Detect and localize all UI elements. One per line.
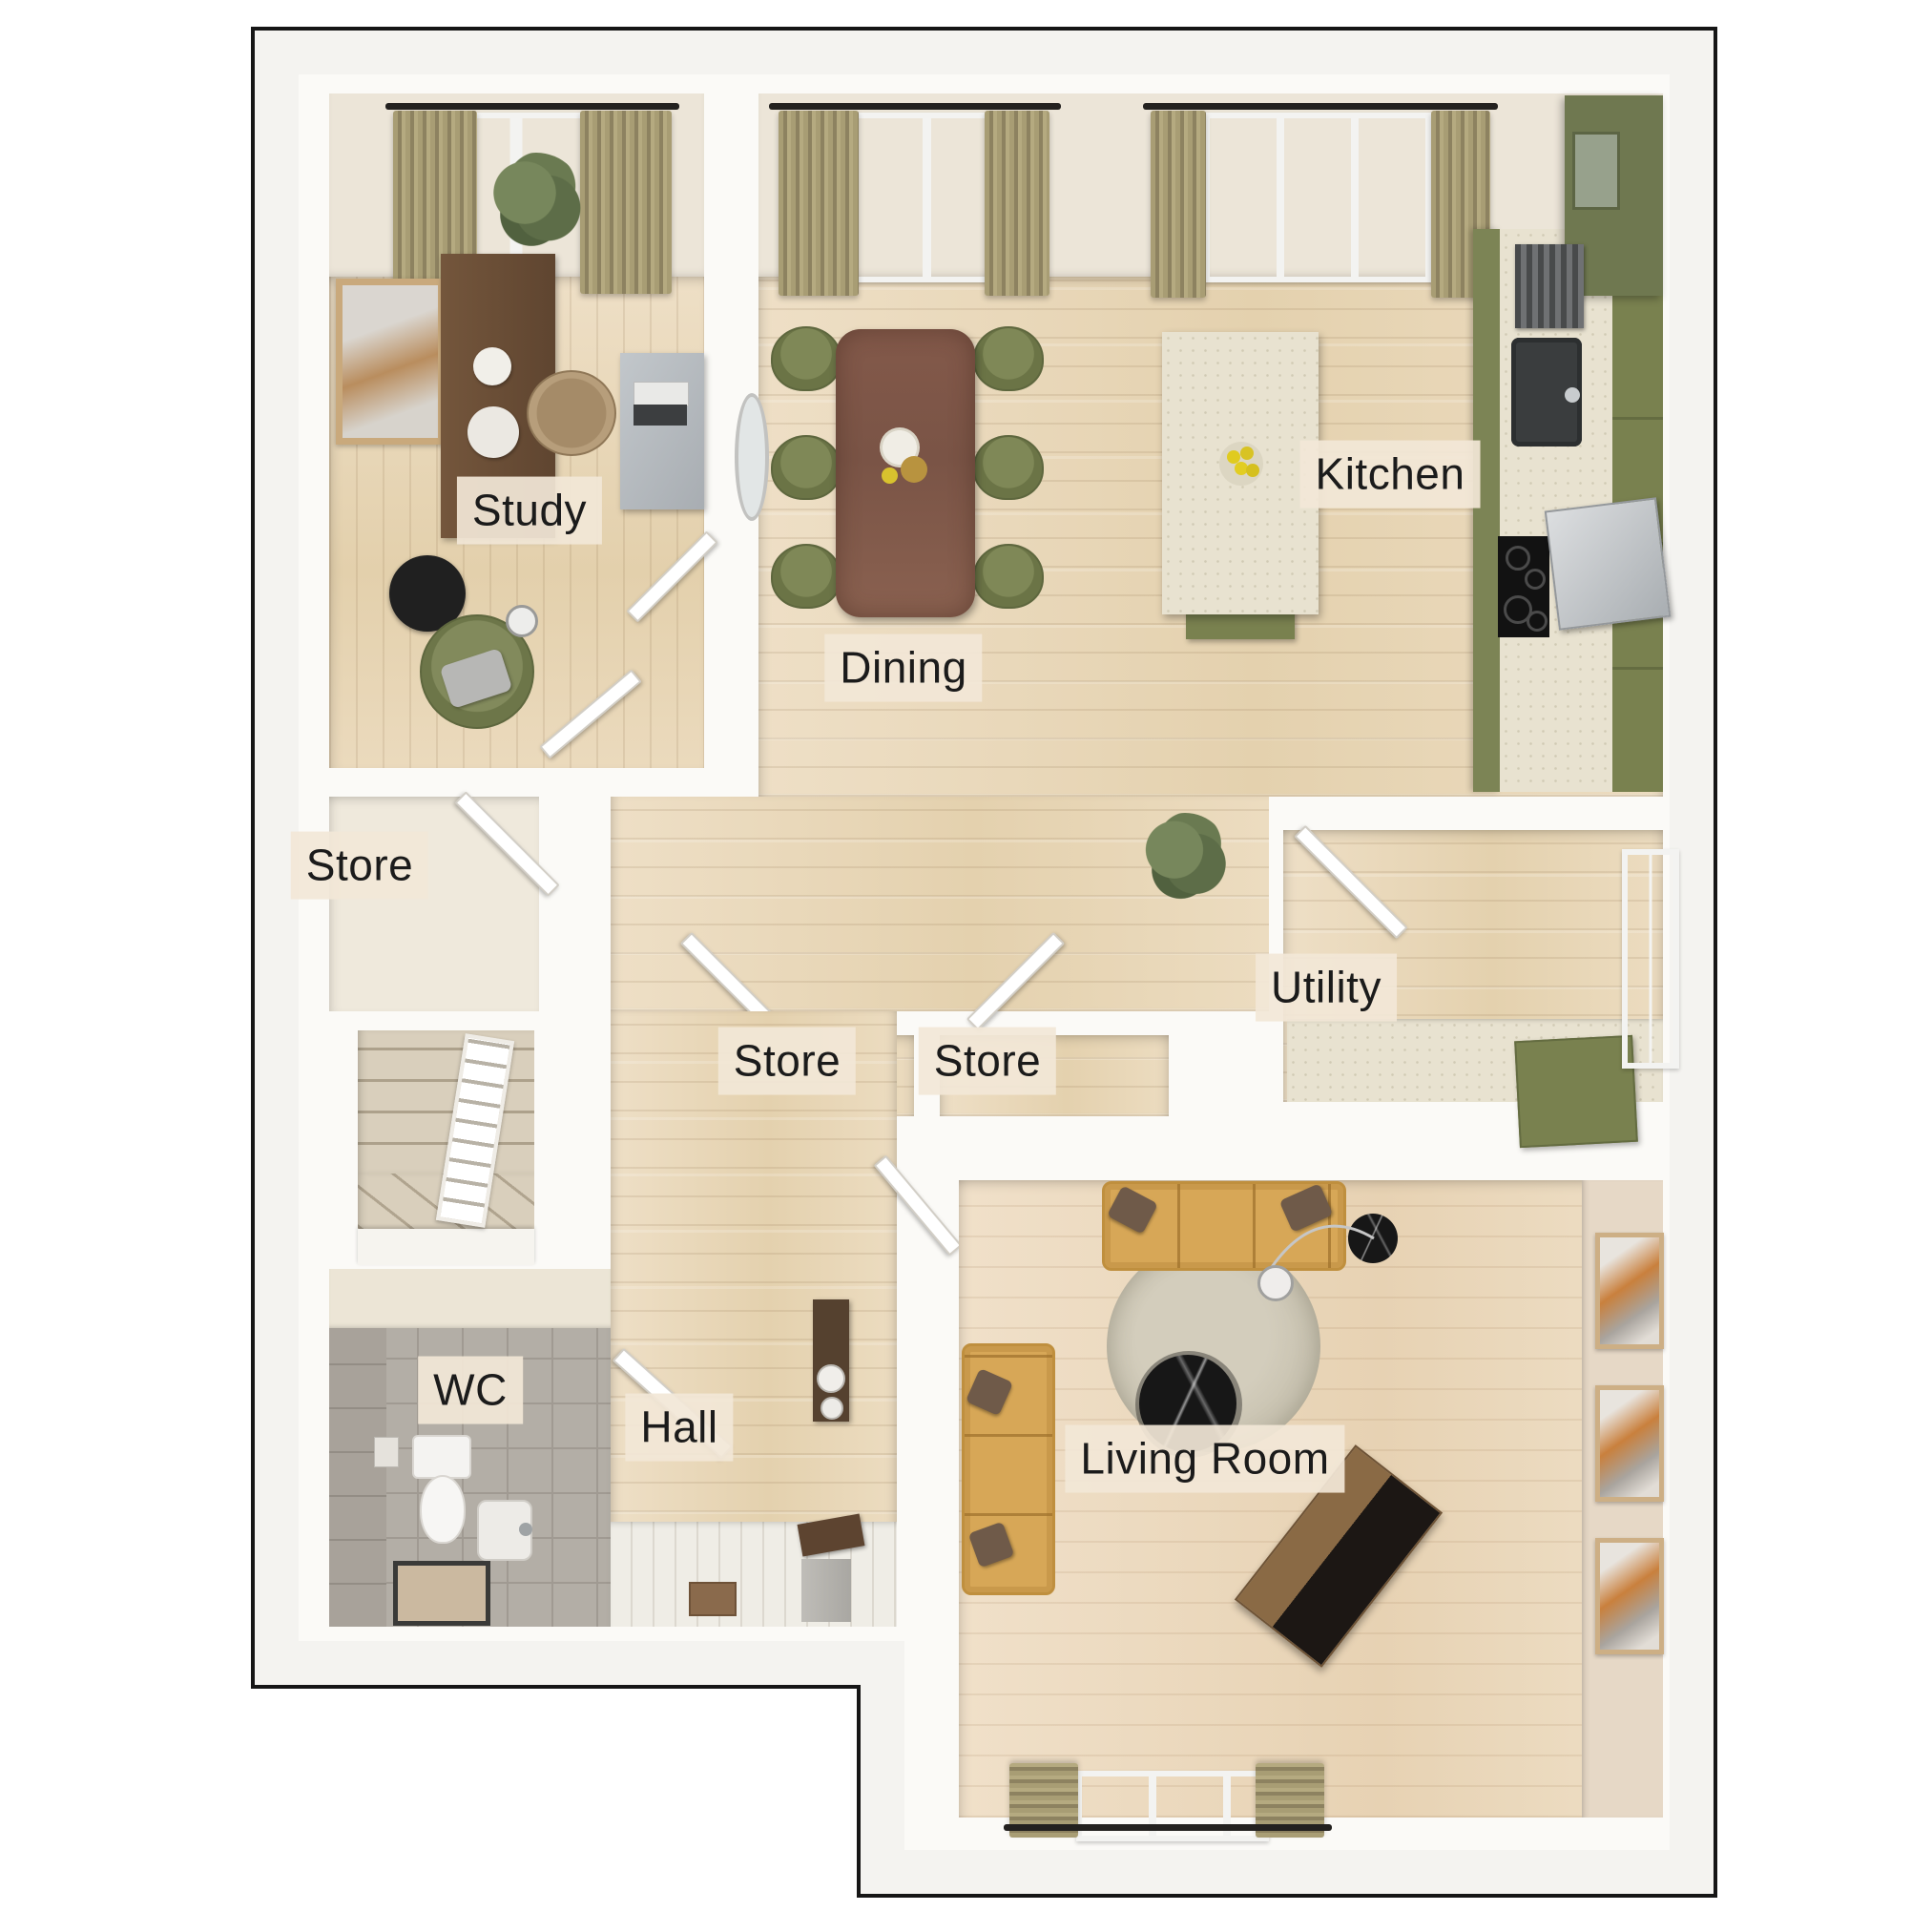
utility-washer <box>1514 1035 1638 1148</box>
dining-curtain-right <box>985 111 1049 296</box>
dining-chair <box>973 544 1044 609</box>
study-floor-lamp <box>506 605 538 637</box>
toilet-roll-holder <box>374 1437 399 1467</box>
hob-ring <box>1527 611 1548 632</box>
study-plant <box>488 153 584 248</box>
dining-chair <box>973 435 1044 500</box>
dining-centerpiece-lemon <box>882 467 898 484</box>
kitchen-extractor <box>1515 244 1584 328</box>
living-room-curtain-rod <box>1004 1824 1332 1831</box>
study-curtain-right <box>580 111 672 294</box>
room-label-kitchen: Kitchen <box>1300 441 1481 509</box>
study-laptop-keyboard <box>634 405 687 426</box>
lemon <box>1240 447 1254 460</box>
hall-doormat <box>689 1582 737 1616</box>
toilet-cistern <box>412 1435 471 1479</box>
wc-wall-face <box>329 1269 611 1328</box>
arc-lamp-head <box>1257 1265 1294 1301</box>
kitchen-window <box>1204 113 1462 282</box>
room-label-utility: Utility <box>1256 954 1397 1022</box>
room-label-store-mid-right: Store <box>919 1028 1056 1095</box>
hob-ring <box>1506 546 1530 571</box>
room-label-store-mid-left: Store <box>718 1028 856 1095</box>
room-label-wc: WC <box>418 1357 523 1424</box>
study-desk <box>620 353 704 509</box>
store-left-floor <box>329 797 539 1011</box>
room-label-study: Study <box>457 477 602 545</box>
room-label-living-room: Living Room <box>1065 1425 1344 1493</box>
dining-curtain-rod <box>769 103 1061 110</box>
dining-chair <box>771 326 841 391</box>
study-vase-small <box>473 347 511 385</box>
room-label-dining: Dining <box>824 634 982 702</box>
hall-lamp-sphere <box>817 1364 845 1393</box>
dining-curtain-left <box>779 111 859 296</box>
dining-wall-mirror <box>735 393 769 521</box>
dining-chair <box>973 326 1044 391</box>
kitchen-appliance-silver <box>1545 497 1671 630</box>
kitchen-cabinet-glass <box>1572 132 1620 210</box>
study-desk-chair <box>527 370 616 456</box>
room-label-store-left: Store <box>291 832 428 900</box>
kitchen-curtain-rod <box>1143 103 1498 110</box>
dining-window <box>853 113 1001 282</box>
hall-lamp-sphere-small <box>821 1397 843 1420</box>
wc-tiled-wall <box>329 1328 386 1627</box>
study-vase-large <box>467 406 519 458</box>
room-label-hall: Hall <box>625 1394 733 1462</box>
kitchen-base-cabinets <box>1473 229 1500 792</box>
wc-basin-tap <box>519 1523 532 1536</box>
wall-art-frame <box>1595 1385 1664 1502</box>
study-laptop-screen <box>634 382 689 406</box>
hall-bench <box>801 1559 851 1622</box>
floor-plan: Study Dining Kitchen Store Store Store U… <box>0 0 1932 1932</box>
staircase-landing <box>358 1229 534 1265</box>
wc-mat <box>393 1561 490 1626</box>
study-picture-frame <box>336 279 445 445</box>
dining-chair <box>771 435 841 500</box>
wall-art-frame <box>1595 1233 1664 1349</box>
study-curtain-rod <box>385 103 679 110</box>
corridor-plant <box>1141 813 1229 901</box>
dining-chair <box>771 544 841 609</box>
wall-art-frame <box>1595 1538 1664 1654</box>
kitchen-faucet <box>1565 387 1580 403</box>
toilet-bowl <box>420 1475 466 1544</box>
dining-centerpiece-vase <box>901 456 927 483</box>
kitchen-curtain-left <box>1151 111 1206 298</box>
hob-ring <box>1525 569 1546 590</box>
lemon <box>1246 464 1259 477</box>
utility-window <box>1622 849 1679 1069</box>
